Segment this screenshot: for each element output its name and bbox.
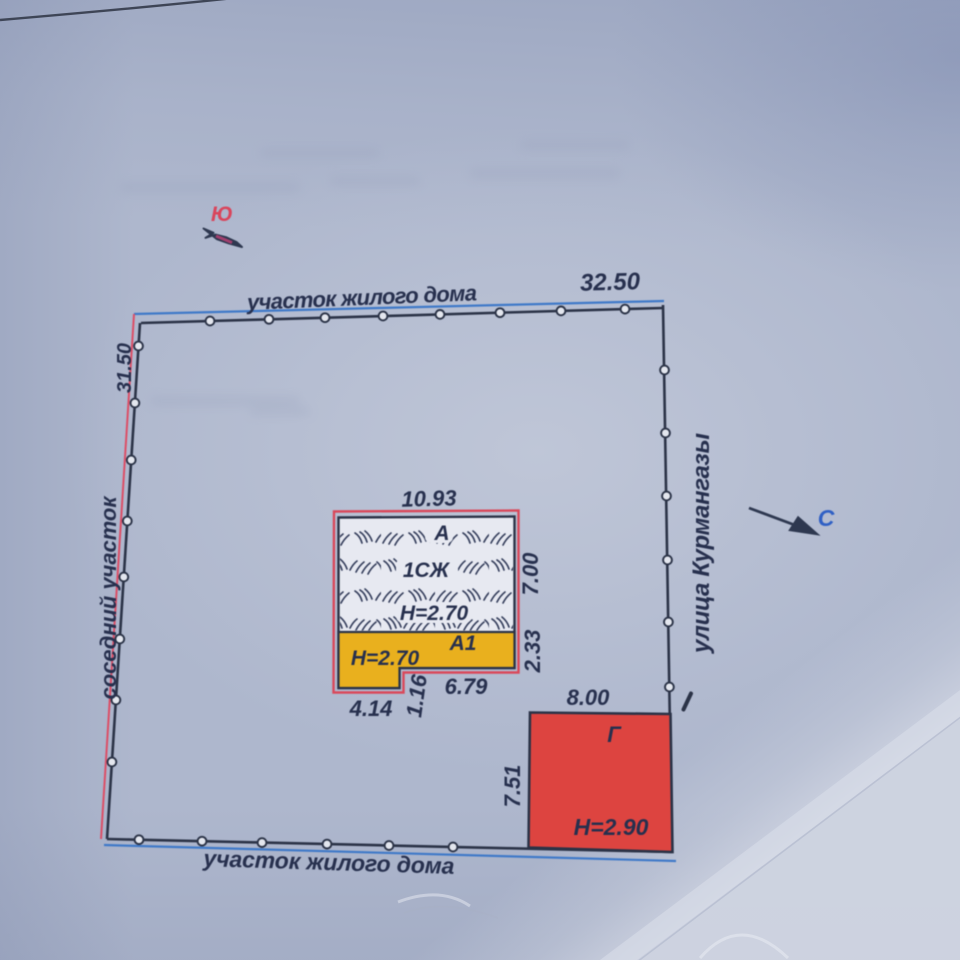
svg-text:Г: Г xyxy=(607,722,622,747)
svg-text:участок жилого дома: участок жилого дома xyxy=(202,845,455,879)
svg-text:6.79: 6.79 xyxy=(445,674,489,699)
svg-text:1СЖ: 1СЖ xyxy=(403,559,451,582)
svg-text:Н=2.70: Н=2.70 xyxy=(400,602,469,625)
svg-text:Н=2.70: Н=2.70 xyxy=(351,647,420,670)
svg-text:А: А xyxy=(433,522,449,545)
svg-text:7.51: 7.51 xyxy=(500,765,525,808)
svg-text:2.33: 2.33 xyxy=(520,630,545,674)
svg-text:8.00: 8.00 xyxy=(567,685,611,710)
svg-text:Н=2.90: Н=2.90 xyxy=(574,814,649,840)
svg-text:участок жилого дома: участок жилого дома xyxy=(246,280,478,315)
svg-text:Ю: Ю xyxy=(211,203,233,226)
svg-text:А1: А1 xyxy=(449,632,477,655)
svg-text:С: С xyxy=(818,505,835,531)
svg-text:32.50: 32.50 xyxy=(580,268,641,297)
svg-text:7.00: 7.00 xyxy=(518,552,543,596)
svg-text:соседний участок: соседний участок xyxy=(96,495,121,700)
svg-text:1.16: 1.16 xyxy=(401,672,432,719)
svg-text:31.50: 31.50 xyxy=(114,343,136,393)
svg-text:улица Курмангазы: улица Курмангазы xyxy=(688,433,715,655)
svg-text:10.93: 10.93 xyxy=(401,485,457,511)
svg-text:4.14: 4.14 xyxy=(349,696,393,721)
